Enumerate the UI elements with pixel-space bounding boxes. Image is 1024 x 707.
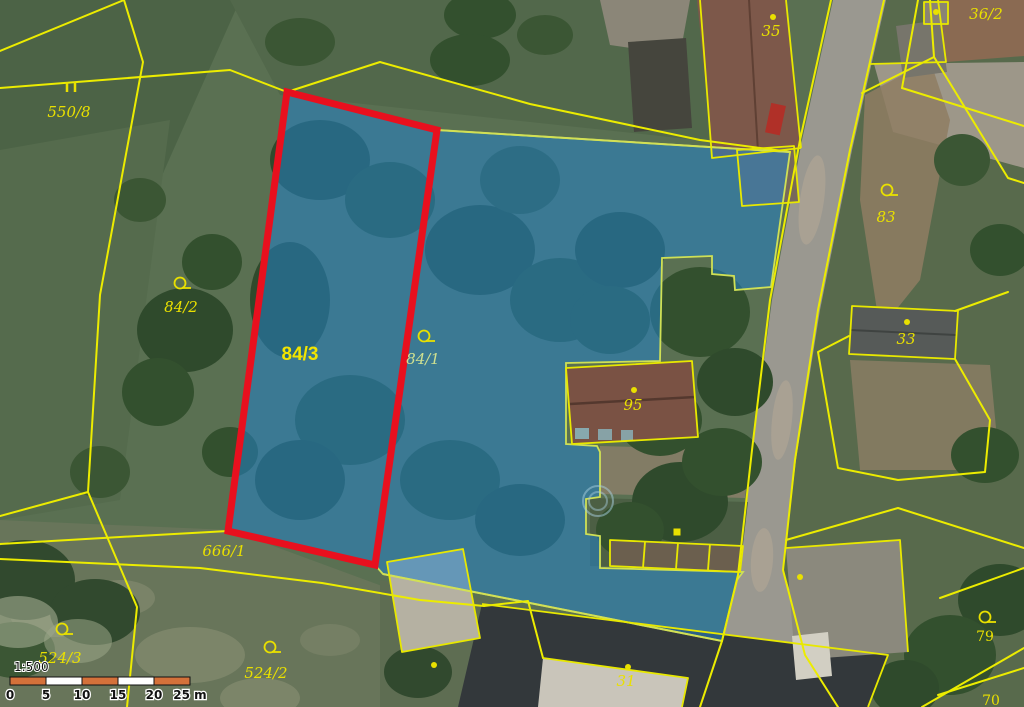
square-marker (674, 529, 681, 536)
parcel-label-524-2[interactable]: 524/2 (244, 664, 287, 682)
building-dot (904, 319, 910, 325)
building-dot (431, 662, 437, 668)
parcel-label-84-1[interactable]: 84/1 (406, 350, 440, 368)
parcel-label-33[interactable]: 33 (896, 330, 915, 348)
parcel-label-83[interactable]: 83 (876, 208, 895, 226)
parcel-label-84-3[interactable]: 84/3 (282, 344, 319, 365)
building-dot (770, 14, 776, 20)
building-dot (625, 664, 631, 670)
parcel-label-79[interactable]: 79 (976, 629, 994, 645)
parcel-label-550-8[interactable]: 550/8 (47, 103, 90, 121)
scale-bar-segment (154, 677, 190, 685)
scale-bar-segment (118, 677, 154, 685)
scale-bar-tick: 25 m (173, 688, 206, 702)
building-dot (797, 574, 803, 580)
scale-bar-segment (46, 677, 82, 685)
scale-bar-segment (82, 677, 118, 685)
parcel-label-95[interactable]: 95 (623, 396, 642, 414)
parcel-label-70[interactable]: 70 (982, 693, 1000, 707)
scale-bar-tick: 15 (110, 688, 127, 702)
scale-bar-tick: 10 (74, 688, 91, 702)
scale-bar-tick: 20 (146, 688, 163, 702)
parcel-label-666-1[interactable]: 666/1 (202, 542, 245, 560)
building-dot (933, 9, 939, 15)
building-tr-grey (896, 20, 947, 78)
scale-bar-segment (10, 677, 46, 685)
parcel-label-84-2[interactable]: 84/2 (164, 298, 198, 316)
building-dot (631, 387, 637, 393)
parcel-label-36-2[interactable]: 36/2 (969, 5, 1003, 23)
scale-bar-tick: 5 (42, 688, 50, 702)
shed-dark (628, 38, 692, 132)
parcel-label-31[interactable]: 31 (616, 672, 635, 690)
map-viewport[interactable]: 550/884/284/384/195666/1524/3524/236/235… (0, 0, 1024, 707)
scale-ratio-label: 1:500 (14, 660, 49, 674)
parcel-label-35[interactable]: 35 (761, 22, 780, 40)
building-35-roof (697, 0, 801, 158)
cadastral-map: 550/884/284/384/195666/1524/3524/236/235… (0, 0, 1024, 707)
scale-bar-tick: 0 (6, 688, 14, 702)
